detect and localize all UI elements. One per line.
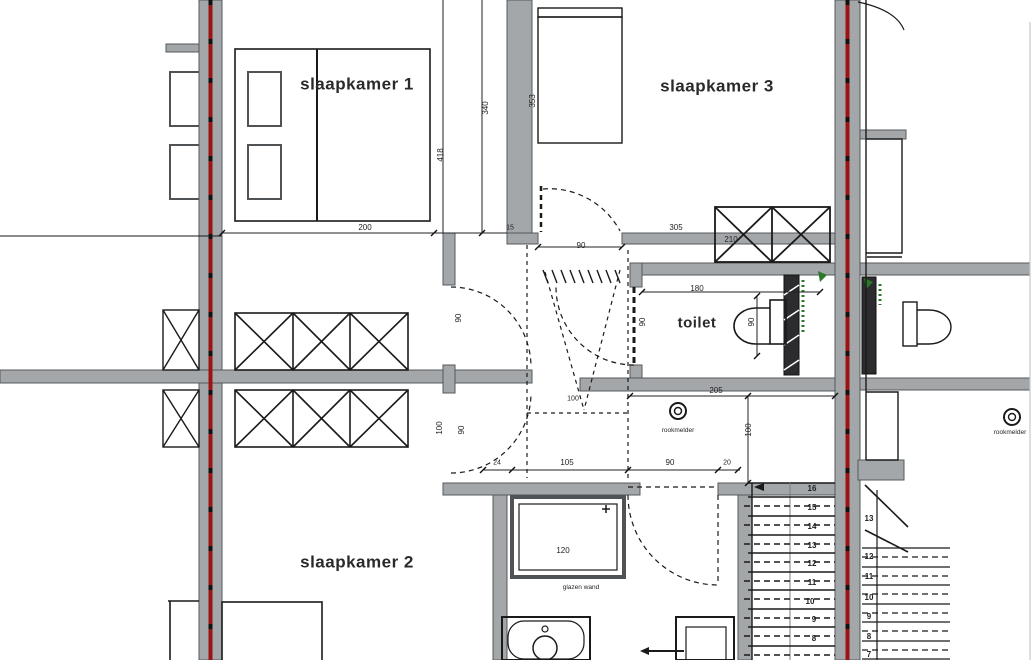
wall-bath-north-a <box>443 483 640 495</box>
wall-landing-b <box>443 365 455 393</box>
wall-sk3-south-a <box>507 233 538 244</box>
washbasin-tap <box>542 626 548 632</box>
wall-neighbor-toilet-north <box>860 263 1030 275</box>
pillow-sk1-a <box>248 72 281 126</box>
wall-neighbor-stub2 <box>860 130 906 139</box>
closet-sk3 <box>538 17 622 143</box>
fixtures <box>502 300 1020 660</box>
neighbor-door-arc <box>858 2 904 30</box>
floorplan-canvas: slaapkamer 1slaapkamer 3slaapkamer 2toil… <box>0 0 1035 660</box>
door-arc-toilet <box>556 287 634 365</box>
pillow-neighbor-b <box>170 145 199 199</box>
rookmelder-icon-neighbor-inner <box>1009 414 1016 421</box>
wardrobe-sk1 <box>235 313 408 370</box>
washbasin-bowl <box>533 636 557 660</box>
neighbor-closet-2 <box>866 392 898 460</box>
wall-bath-north-b <box>718 483 835 495</box>
wall-bath-east <box>738 495 752 660</box>
wardrobe-sk2 <box>235 390 408 447</box>
toilet-cistern-neighbor <box>903 302 917 346</box>
wall-sk3-south-b <box>622 233 835 244</box>
wall-landing-a <box>443 233 455 285</box>
wall-toilet-south <box>580 378 835 391</box>
shower-drain <box>602 505 610 513</box>
door-arc-sk2 <box>451 393 531 473</box>
wall-bath-west <box>493 495 507 660</box>
wall-neighbor-toilet-south <box>860 378 1030 390</box>
neighbor-fragments <box>858 0 1030 660</box>
door-arc-bathroom <box>628 495 718 585</box>
duct-shaft-neighbor <box>862 277 876 374</box>
wall-neighbor-landing <box>858 460 904 480</box>
stair-break-lines <box>865 485 908 552</box>
floorplan-drawing <box>0 0 1035 660</box>
bed-sk1 <box>235 49 430 221</box>
wall-neighbor-stub <box>166 44 199 52</box>
loft-ladder-line-a <box>545 272 584 410</box>
wc-bathroom-inner <box>686 627 726 660</box>
flow-arrow-head <box>640 647 649 655</box>
door-arc-sk1 <box>451 287 531 367</box>
toilet-bowl-neighbor <box>917 310 951 344</box>
wall-toilet-north <box>630 263 835 275</box>
staircase-neighbor <box>862 485 950 660</box>
closet-sk3-top <box>538 8 622 17</box>
bed-neighbor <box>168 601 199 660</box>
pillow-neighbor-a <box>170 72 199 126</box>
door-arc-sk3 <box>543 189 620 231</box>
rookmelder-icon-neighbor <box>1004 409 1020 425</box>
rookmelder-icon-inner <box>675 408 682 415</box>
neighbor-closet <box>866 139 902 257</box>
rookmelder-icon <box>670 403 686 419</box>
wall-toilet-west-top <box>630 263 642 287</box>
shower-inner <box>519 504 617 570</box>
wc-bathroom <box>676 617 734 660</box>
staircase-main <box>744 483 835 660</box>
bed-sk2 <box>222 602 322 660</box>
wall-sk1-east <box>507 0 532 243</box>
pillow-sk1-b <box>248 145 281 199</box>
toilet-bowl <box>734 308 770 344</box>
loft-ladder-hatch <box>543 270 620 283</box>
